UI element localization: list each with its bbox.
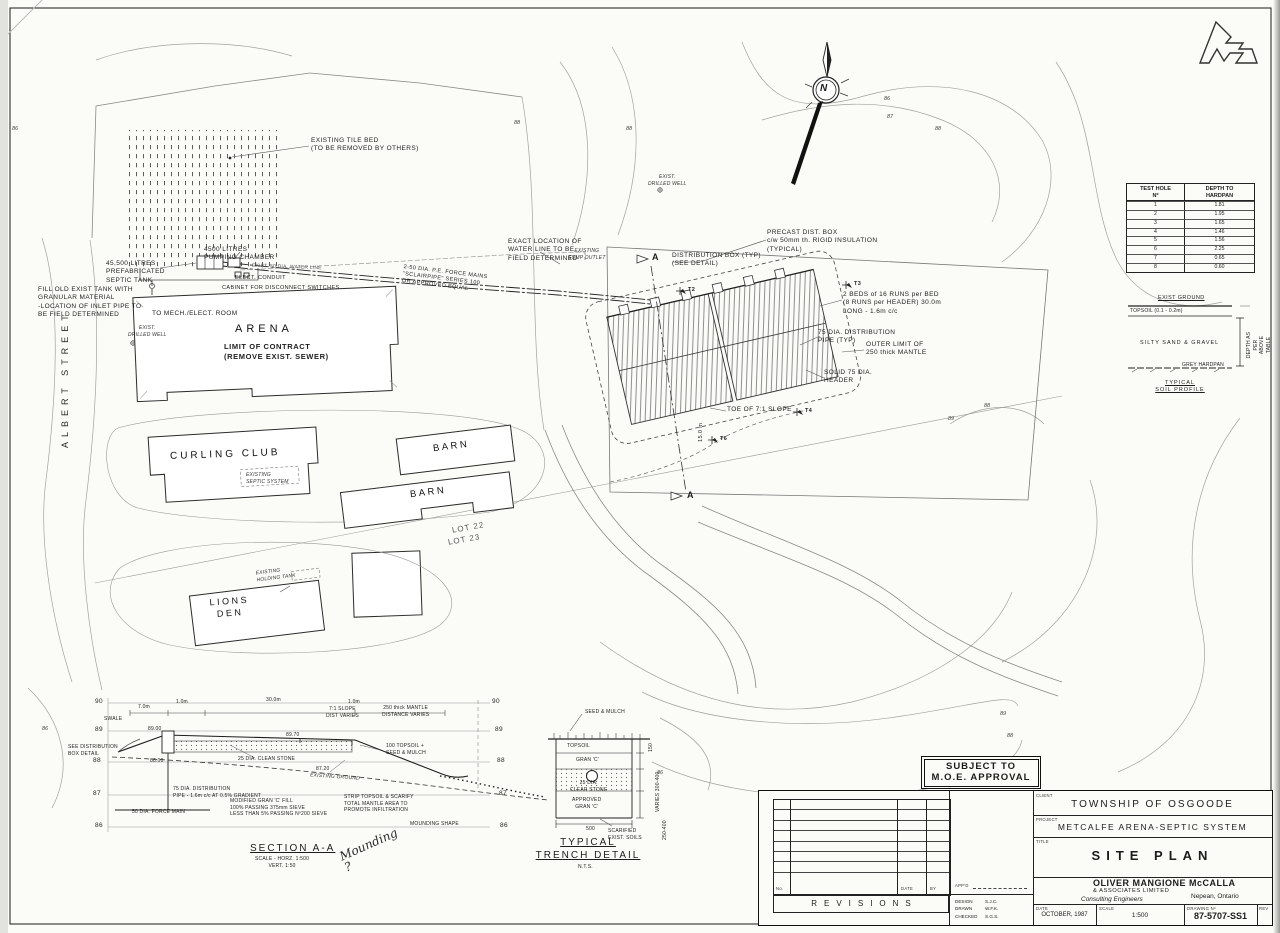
dim-30m: 30.0m bbox=[266, 697, 281, 704]
dim-7m: 7.0m bbox=[138, 704, 150, 711]
elev-8900: 89.00 bbox=[148, 726, 162, 733]
elev-left-86: 86 bbox=[95, 822, 103, 830]
drawing-sheet: EXISTING TILE BED (TO BE REMOVED BY OTHE… bbox=[0, 0, 1280, 933]
label-swale: SWALE bbox=[104, 716, 122, 723]
dim-varies: VARIES 300-400 bbox=[655, 771, 662, 812]
label-nts: N.T.S. bbox=[578, 864, 593, 871]
label-15m-dim: 15.0 m bbox=[698, 423, 705, 442]
label-clean-stone: 25 DIA. CLEAN STONE bbox=[238, 756, 295, 763]
label-albert-street: ALBERT STREET bbox=[60, 310, 72, 448]
title-value: SITE PLAN bbox=[1033, 848, 1272, 863]
soil-profile-title: TYPICAL SOIL PROFILE bbox=[1145, 380, 1215, 394]
elev-left-88: 88 bbox=[93, 757, 101, 765]
label-section-a-top: A bbox=[652, 252, 659, 264]
scale-value: 1:500 bbox=[1096, 912, 1184, 919]
client-value: TOWNSHIP OF OSGOODE bbox=[1033, 799, 1272, 810]
label-t3: T3 bbox=[854, 281, 861, 288]
label-elect-conduit: ELECT. CONDUIT bbox=[235, 275, 286, 282]
label-cabinet: CABINET FOR DISCONNECT SWITCHES bbox=[222, 285, 340, 292]
contour-label: 88 bbox=[984, 403, 990, 409]
contour-label: 88 bbox=[626, 126, 632, 132]
contour-label: 88 bbox=[1007, 733, 1013, 739]
rev-label: REV bbox=[1259, 906, 1269, 911]
label-arena: ARENA bbox=[235, 322, 293, 336]
elev-left-87: 87 bbox=[93, 790, 101, 798]
table-row: 4 1.46 bbox=[1127, 228, 1254, 237]
label-beds-note: 2 BEDS of 16 RUNS per BED (8 RUNS per HE… bbox=[843, 291, 941, 316]
elev-left-89: 89 bbox=[95, 726, 103, 734]
design-drawn-checked: DESIGNS.J.C. DRAWNW.F.K. CHECKEDS.G.S. bbox=[955, 898, 999, 920]
elev-right-86: 86 bbox=[500, 822, 508, 830]
elev-right-88: 88 bbox=[497, 757, 505, 765]
elev-right-87: 87 bbox=[499, 790, 507, 798]
design-value: S.J.C. bbox=[985, 899, 998, 904]
test-hole-table: TEST HOLE Nº DEPTH TO HARDPAN 1 1.81 2 1… bbox=[1126, 183, 1255, 273]
contour-label: 89 bbox=[948, 416, 954, 422]
label-to-mech-room: TO MECH./ELECT. ROOM bbox=[152, 310, 238, 318]
corner-logo-icon bbox=[1200, 22, 1257, 63]
rev-col-no: No. bbox=[776, 886, 783, 891]
elev-8720: 87.20 bbox=[316, 766, 330, 773]
rev-col-by: BY bbox=[930, 886, 936, 891]
rev-col-date: DATE bbox=[901, 886, 913, 891]
table-row: 1 1.81 bbox=[1127, 201, 1254, 210]
client-label: CLIENT bbox=[1036, 793, 1053, 798]
label-water-line-location: EXACT LOCATION OF WATER LINE TO BE FIELD… bbox=[508, 238, 582, 263]
label-section-a-bottom: A bbox=[687, 490, 694, 502]
appd-label: APP'D bbox=[955, 883, 969, 888]
appd-signature-line bbox=[973, 888, 1027, 889]
label-t2: T2 bbox=[688, 287, 695, 294]
elev-8970: 89.70 bbox=[286, 732, 300, 739]
contour-label: 88 bbox=[935, 126, 941, 132]
firm-name: OLIVER MANGIONE McCALLA bbox=[1093, 878, 1236, 888]
drawn-value: W.F.K. bbox=[985, 906, 998, 911]
table-row: 5 1.56 bbox=[1127, 236, 1254, 245]
label-see-dist-box: SEE DISTRIBUTION BOX DETAIL bbox=[68, 744, 118, 757]
label-force-main-section: 50 DIA. FORCE MAIN bbox=[132, 809, 185, 816]
dim-150: 150 bbox=[648, 743, 655, 752]
title-block: No. DATE BY REVISIONS APP'D DESIGNS.J.C.… bbox=[758, 790, 1273, 926]
label-hardpan: GREY HARDPAN bbox=[1182, 362, 1224, 369]
scan-edge-right bbox=[1273, 0, 1280, 933]
revisions-band: REVISIONS bbox=[773, 894, 949, 913]
label-outer-limit-mantle: OUTER LIMIT OF 250 thick MANTLE bbox=[866, 341, 927, 358]
table-row: 2 1.95 bbox=[1127, 210, 1254, 219]
dim-1m-b: 1.0m bbox=[348, 699, 360, 706]
label-trench-gran: GRAN 'C' bbox=[576, 757, 599, 764]
firm-type: Consulting Engineers bbox=[1081, 896, 1143, 903]
moe-line1: SUBJECT TO bbox=[946, 762, 1016, 773]
label-clear-stone: 25 DIA. CLEAR STONE bbox=[570, 780, 607, 793]
table-row: 3 1.65 bbox=[1127, 219, 1254, 228]
label-existing-tile-bed: EXISTING TILE BED (TO BE REMOVED BY OTHE… bbox=[311, 137, 419, 154]
project-value: METCALFE ARENA-SEPTIC SYSTEM bbox=[1033, 822, 1272, 832]
dim-1m-a: 1.0m bbox=[176, 699, 188, 706]
design-label: DESIGN bbox=[955, 898, 985, 905]
label-distribution-box: DISTRIBUTION BOX (TYP) (SEE DETAIL) bbox=[672, 252, 761, 269]
revisions-table: No. DATE BY bbox=[773, 799, 951, 896]
dim-500: 500 bbox=[586, 826, 595, 833]
scan-edge-left bbox=[0, 0, 8, 933]
date-value: OCTOBER, 1987 bbox=[1033, 912, 1096, 918]
section-aa-title: SECTION A-A bbox=[250, 842, 335, 855]
scale-label: SCALE bbox=[1099, 906, 1114, 911]
contour-label: 86 bbox=[42, 726, 48, 732]
drawn-label: DRAWN bbox=[955, 905, 985, 912]
label-topsoil: TOPSOIL (0.1 - 0.2m) bbox=[1130, 308, 1183, 315]
label-fill-old-tank: FILL OLD EXIST TANK WITH GRANULAR MATERI… bbox=[38, 286, 141, 320]
label-strip-topsoil: STRIP TOPSOIL & SCARIFY TOTAL MANTLE ARE… bbox=[344, 794, 414, 814]
label-existing-septic: EXISTING SEPTIC SYSTEM bbox=[246, 472, 289, 485]
label-gran-fill: MODIFIED GRAN 'C' FILL 100% PASSING 375m… bbox=[230, 798, 327, 818]
depth-col-header: DEPTH TO HARDPAN bbox=[1185, 184, 1254, 200]
elev-8800: 88.00 bbox=[150, 758, 164, 765]
table-row: 7 0.65 bbox=[1127, 254, 1254, 263]
contour-label: 88 bbox=[514, 120, 520, 126]
label-approved-gran: APPROVED GRAN 'C' bbox=[572, 797, 601, 810]
contour-label: 86 bbox=[12, 126, 18, 132]
label-t6: T6 bbox=[720, 436, 727, 443]
dim-250-400: 250-400 bbox=[662, 820, 669, 840]
title-label: TITLE bbox=[1036, 839, 1049, 844]
label-mantle-note: 250 thick MANTLE DISTANCE VARIES bbox=[382, 705, 429, 718]
trench-detail-sketch bbox=[548, 714, 650, 828]
label-t4: T4 bbox=[805, 408, 812, 415]
firm-city: Nepean, Ontario bbox=[1191, 893, 1239, 900]
label-lions-den: LIONS DEN bbox=[209, 595, 250, 621]
contour-label: 86 bbox=[884, 96, 890, 102]
contour-label: 89 bbox=[1000, 711, 1006, 717]
label-slope-note: 7:1 SLOPE DIST VARIES bbox=[326, 706, 359, 719]
label-exist-ground: EXIST GROUND bbox=[1158, 295, 1205, 302]
contour-label: 87 bbox=[887, 114, 893, 120]
moe-line2: M.O.E. APPROVAL bbox=[932, 773, 1031, 784]
elev-right-90: 90 bbox=[492, 698, 500, 706]
label-mounding-shape: MOUNDING SHAPE bbox=[410, 821, 459, 828]
label-precast-dist-box: PRECAST DIST. BOX c/w 50mm th. RIGID INS… bbox=[767, 229, 877, 254]
barn-buildings bbox=[340, 425, 514, 617]
label-depth-note: DEPTH AS PER ABOVE TABLE bbox=[1246, 328, 1272, 362]
label-north-n: N bbox=[820, 82, 828, 95]
moe-approval-stamp: SUBJECT TO M.O.E. APPROVAL bbox=[921, 756, 1041, 789]
drawing-no-value: 87-5707-SS1 bbox=[1184, 911, 1257, 921]
section-aa-scale: SCALE - HORZ. 1:500 VERT. 1:50 bbox=[255, 856, 309, 869]
test-hole-rows: 1 1.81 2 1.95 3 1.65 4 1.46 bbox=[1127, 201, 1254, 271]
test-hole-col-header: TEST HOLE Nº bbox=[1127, 184, 1185, 200]
north-arrow-icon bbox=[791, 42, 849, 185]
label-pumping-chamber: 4500 LITRES PUMPING CHAMBER bbox=[204, 246, 275, 263]
label-topsoil-seed: 100 TOPSOIL + SEED & MULCH bbox=[386, 743, 426, 756]
label-silty-sand: SILTY SAND & GRAVEL bbox=[1140, 340, 1219, 347]
label-seed-mulch: SEED & MULCH bbox=[585, 709, 625, 716]
label-trench-topsoil: TOPSOIL bbox=[567, 743, 590, 750]
firm-sub: & ASSOCIATES LIMITED bbox=[1093, 888, 1169, 894]
label-drilled-well-left: EXIST. DRILLED WELL bbox=[128, 325, 167, 338]
label-toe-of-slope: TOE OF 7:1 SLOPE bbox=[727, 406, 792, 414]
checked-label: CHECKED bbox=[955, 913, 985, 920]
elev-left-90: 90 bbox=[95, 698, 103, 706]
checked-value: S.G.S. bbox=[985, 914, 999, 919]
label-drilled-well-top: EXIST. DRILLED WELL bbox=[648, 174, 687, 187]
elev-right-89: 89 bbox=[495, 726, 503, 734]
septic-beds bbox=[583, 248, 864, 447]
trench-detail-title: TYPICAL TRENCH DETAIL bbox=[532, 836, 644, 862]
label-limit-of-contract: LIMIT OF CONTRACT (REMOVE EXIST. SEWER) bbox=[224, 342, 329, 362]
table-row: 8 0.60 bbox=[1127, 263, 1254, 272]
label-solid-header: SOLID 75 DIA. HEADER bbox=[824, 369, 872, 386]
date-label: DATE bbox=[1036, 906, 1048, 911]
table-row: 6 2.25 bbox=[1127, 245, 1254, 254]
label-septic-tank: 45,500 LITRES PREFABRICATED SEPTIC TANK bbox=[106, 260, 165, 285]
